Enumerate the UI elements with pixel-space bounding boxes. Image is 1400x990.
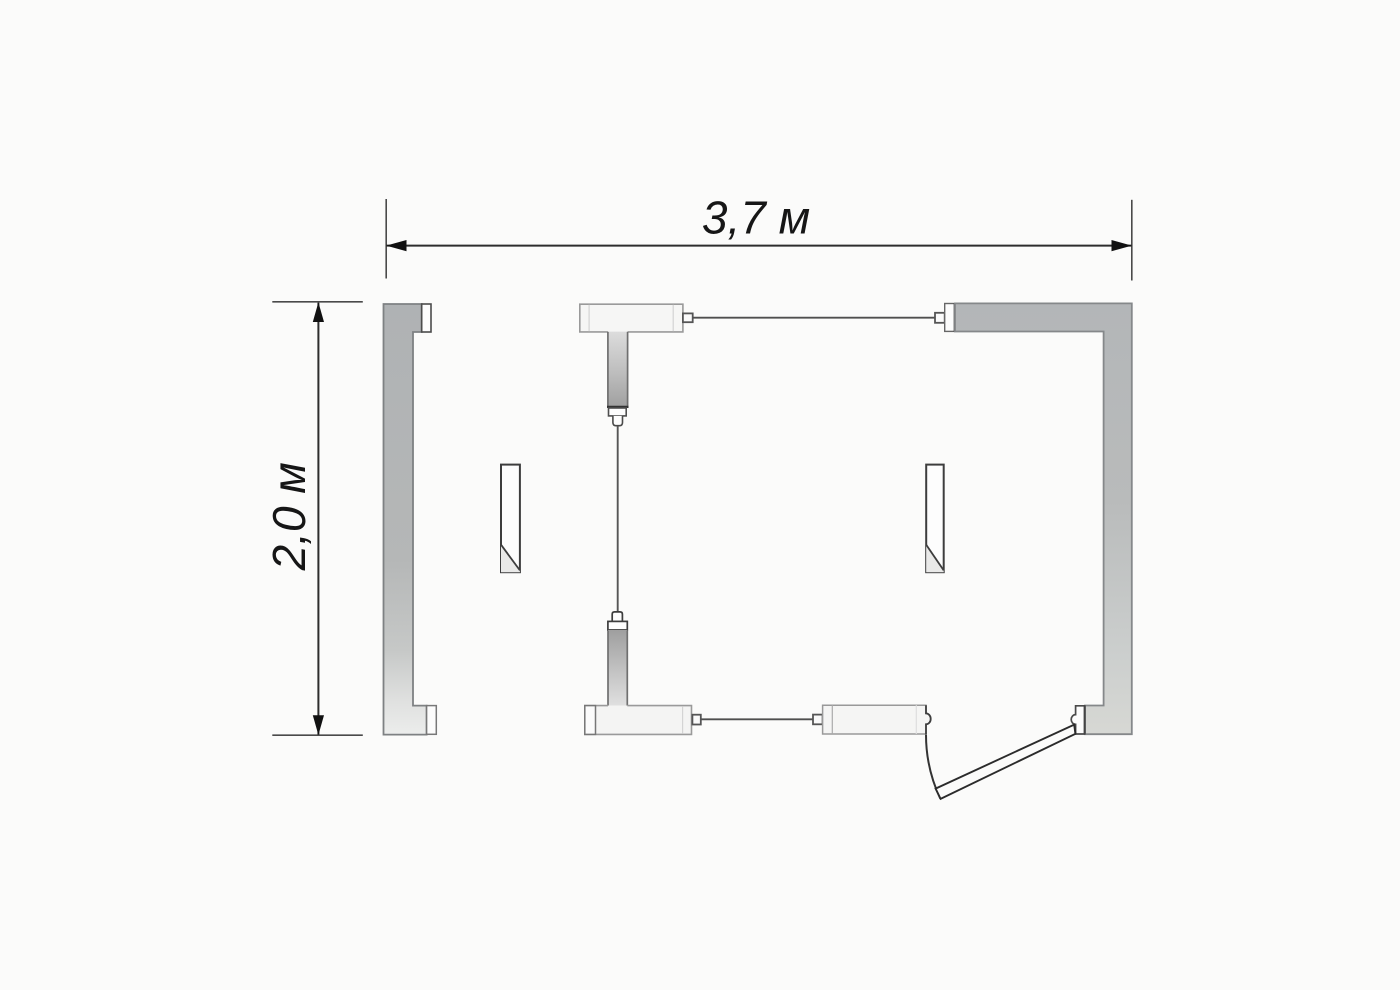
svg-text:3,7 м: 3,7 м [702,191,810,243]
svg-text:2,0 м: 2,0 м [263,462,315,571]
